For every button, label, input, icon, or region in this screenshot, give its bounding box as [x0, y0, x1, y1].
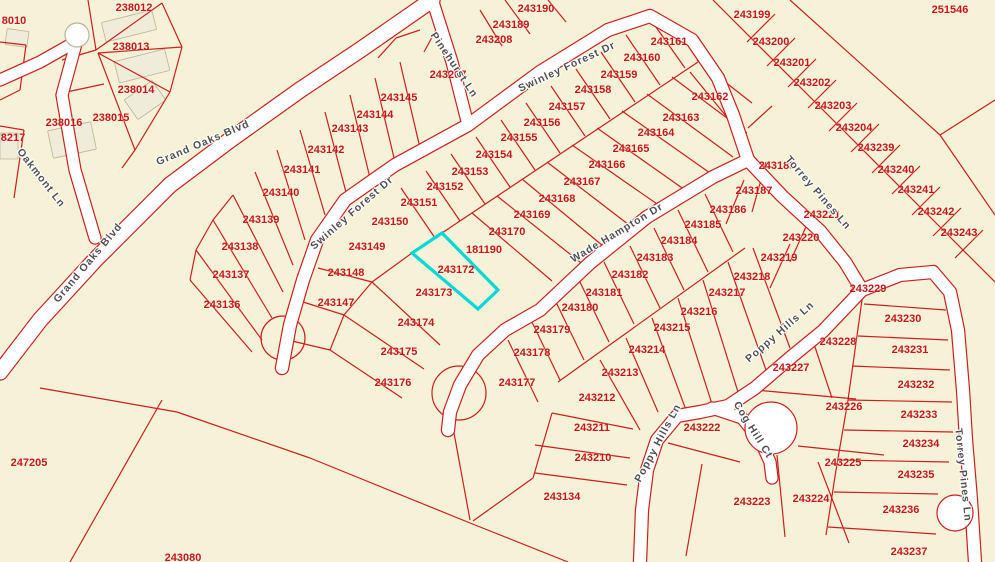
parcel-label-243162[interactable]: 243162 — [692, 91, 729, 103]
parcel-label-238015[interactable]: 238015 — [93, 112, 130, 124]
parcel-boundary-line — [162, 3, 182, 47]
parcel-boundary-line — [755, 390, 856, 399]
parcel-label-243226[interactable]: 243226 — [826, 401, 863, 413]
parcel-boundary-line — [213, 195, 233, 220]
parcel-label-243174[interactable]: 243174 — [398, 317, 435, 329]
parcel-label-243227[interactable]: 243227 — [773, 362, 810, 374]
parcel-boundary-line — [177, 412, 310, 458]
parcel-boundary-line — [70, 400, 162, 562]
parcel-label-243150[interactable]: 243150 — [372, 216, 409, 228]
parcel-label-243224[interactable]: 243224 — [793, 493, 830, 505]
parcel-label-243161[interactable]: 243161 — [651, 36, 688, 48]
parcel-label-243168[interactable]: 243168 — [539, 193, 576, 205]
parcel-boundary-line — [0, 126, 24, 130]
parcel-label-238013[interactable]: 238013 — [113, 41, 150, 53]
parcel-boundary-line — [535, 473, 627, 485]
parcel-label-8217[interactable]: 8217 — [1, 132, 25, 144]
parcel-label-243144[interactable]: 243144 — [357, 109, 394, 121]
parcel-label-243230[interactable]: 243230 — [885, 313, 922, 325]
road-oakmont-connector — [0, 45, 70, 80]
parcel-boundary-line — [190, 280, 252, 352]
parcel-label-243145[interactable]: 243145 — [381, 92, 418, 104]
parcel-boundary-line — [668, 443, 740, 462]
parcel-label-243225[interactable]: 243225 — [825, 457, 862, 469]
parcel-label-243153[interactable]: 243153 — [452, 166, 489, 178]
parcel-label-243142[interactable]: 243142 — [308, 144, 345, 156]
parcel-boundary-line — [401, 188, 435, 238]
parcel-label-243234[interactable]: 243234 — [903, 438, 940, 450]
parcel-label-243164[interactable]: 243164 — [638, 127, 675, 139]
parcel-boundary-line — [330, 315, 344, 350]
parcel-label-238016[interactable]: 238016 — [46, 117, 83, 129]
parcel-boundary-line — [476, 137, 510, 187]
parcel-label-243218[interactable]: 243218 — [734, 271, 771, 283]
parcel-label-243139[interactable]: 243139 — [243, 214, 280, 226]
parcel-label-243187[interactable]: 243187 — [736, 185, 773, 197]
parcel-label-243149[interactable]: 243149 — [349, 241, 386, 253]
parcel-map-canvas[interactable]: 8010238012238013238014238015238016821724… — [0, 0, 995, 562]
parcel-label-243138[interactable]: 243138 — [222, 241, 259, 253]
parcel-boundary-line — [848, 400, 952, 402]
parcel-boundary-line — [426, 171, 460, 221]
parcel-label-243167[interactable]: 243167 — [564, 176, 601, 188]
parcel-label-243214[interactable]: 243214 — [629, 344, 666, 356]
parcel-label-243152[interactable]: 243152 — [427, 181, 464, 193]
parcel-label-243186[interactable]: 243186 — [710, 204, 747, 216]
parcel-boundary-line — [196, 250, 262, 340]
parcel-label-243178[interactable]: 243178 — [514, 347, 551, 359]
culdesac-bulb — [65, 23, 89, 47]
parcel-label-243175[interactable]: 243175 — [381, 346, 418, 358]
parcel-label-243134[interactable]: 243134 — [544, 491, 581, 503]
parcel-boundary-line — [0, 90, 20, 100]
parcel-label-243166[interactable]: 243166 — [589, 159, 626, 171]
parcel-label-243159[interactable]: 243159 — [601, 69, 638, 81]
parcel-boundary-line — [777, 455, 785, 537]
parcel-label-243215[interactable]: 243215 — [654, 322, 691, 334]
parcel-label-243204[interactable]: 243204 — [836, 122, 873, 134]
parcel-label-243148[interactable]: 243148 — [328, 267, 365, 279]
parcel-label-243201[interactable]: 243201 — [774, 57, 811, 69]
parcel-label-243228[interactable]: 243228 — [820, 336, 857, 348]
parcel-label-243223[interactable]: 243223 — [734, 496, 771, 508]
parcel-boundary-line — [470, 523, 568, 562]
parcel-boundary-line — [790, 0, 940, 135]
parcel-boundary-line — [196, 220, 213, 250]
parcel-label-238014[interactable]: 238014 — [118, 84, 155, 96]
parcel-label-243137[interactable]: 243137 — [213, 269, 250, 281]
parcel-boundary-line — [798, 446, 884, 455]
parcel-boundary-line — [814, 344, 832, 398]
parcel-label-243242[interactable]: 243242 — [918, 206, 955, 218]
parcel-label-243140[interactable]: 243140 — [263, 187, 300, 199]
parcel-boundary-line — [350, 95, 370, 178]
parcel-label-243231[interactable]: 243231 — [892, 344, 929, 356]
parcel-boundary-line — [852, 366, 950, 370]
parcel-label-243136[interactable]: 243136 — [204, 299, 241, 311]
parcel-boundary-line — [122, 150, 135, 168]
parcel-label-243154[interactable]: 243154 — [476, 149, 513, 161]
parcel-label-243216[interactable]: 243216 — [681, 306, 718, 318]
parcel-label-243158[interactable]: 243158 — [575, 84, 612, 96]
parcel-boundary-line — [848, 300, 862, 400]
parcel-label-243222[interactable]: 243222 — [684, 422, 721, 434]
parcel-boundary-line — [170, 47, 182, 92]
parcel-label-243235[interactable]: 243235 — [898, 469, 935, 481]
parcel-label-243240[interactable]: 243240 — [878, 164, 915, 176]
parcel-label-243219[interactable]: 243219 — [761, 252, 798, 264]
parcel-boundary-line — [686, 464, 702, 556]
parcel-label-243155[interactable]: 243155 — [501, 132, 538, 144]
parcel-boundary-line — [647, 94, 733, 157]
parcel-label-243177[interactable]: 243177 — [499, 377, 536, 389]
parcel-label-243202[interactable]: 243202 — [794, 77, 831, 89]
parcel-label-243232[interactable]: 243232 — [898, 379, 935, 391]
parcel-label-243141[interactable]: 243141 — [284, 164, 321, 176]
parcel-label-8010[interactable]: 8010 — [2, 15, 26, 27]
parcel-label-243208[interactable]: 243208 — [476, 34, 513, 46]
parcel-boundary-line — [940, 100, 995, 135]
parcel-label-243229[interactable]: 243229 — [850, 283, 887, 295]
parcel-label-251546[interactable]: 251546 — [932, 4, 969, 16]
parcel-label-243237[interactable]: 243237 — [891, 546, 928, 558]
parcel-boundary-line — [858, 336, 948, 340]
parcel-label-243179[interactable]: 243179 — [534, 324, 571, 336]
parcel-label-243163[interactable]: 243163 — [663, 112, 700, 124]
parcel-label-243156[interactable]: 243156 — [524, 117, 561, 129]
parcel-label-243182[interactable]: 243182 — [612, 269, 649, 281]
parcel-label-243176[interactable]: 243176 — [375, 377, 412, 389]
parcel-label-243180[interactable]: 243180 — [562, 302, 599, 314]
parcel-label-243173[interactable]: 243173 — [416, 287, 453, 299]
parcel-label-243184[interactable]: 243184 — [661, 235, 698, 247]
parcel-label-243172[interactable]: 243172 — [438, 264, 475, 276]
parcel-boundary-line — [748, 106, 772, 128]
parcel-label-243190[interactable]: 243190 — [518, 3, 555, 15]
parcel-label-243200[interactable]: 243200 — [753, 36, 790, 48]
parcel-label-247205[interactable]: 247205 — [11, 457, 48, 469]
parcel-label-243211[interactable]: 243211 — [574, 422, 610, 434]
parcel-label-243143[interactable]: 243143 — [332, 123, 369, 135]
parcel-boundary-line — [940, 135, 995, 215]
parcel-label-243151[interactable]: 243151 — [401, 197, 438, 209]
parcel-label-243203[interactable]: 243203 — [815, 100, 852, 112]
parcel-boundary-line — [372, 253, 412, 282]
parcel-label-243236[interactable]: 243236 — [883, 504, 920, 516]
parcel-boundary-line — [844, 430, 953, 432]
parcel-boundary-line — [190, 250, 196, 280]
parcel-label-243233[interactable]: 243233 — [901, 409, 938, 421]
parcel-boundary-line — [88, 0, 96, 50]
parcel-label-243213[interactable]: 243213 — [602, 367, 639, 379]
parcel-label-243243[interactable]: 243243 — [941, 227, 978, 239]
parcel-boundary-line — [452, 422, 470, 520]
parcel-label-243241[interactable]: 243241 — [898, 184, 935, 196]
parcel-boundary-line — [770, 244, 790, 288]
parcel-label-243169[interactable]: 243169 — [514, 209, 551, 221]
parcel-label-243199[interactable]: 243199 — [734, 9, 771, 21]
parcel-boundary-line — [292, 341, 330, 350]
parcel-label-243212[interactable]: 243212 — [579, 392, 616, 404]
parcel-label-238012[interactable]: 238012 — [116, 2, 153, 14]
parcel-label-243181[interactable]: 243181 — [586, 287, 623, 299]
parcel-label-243183[interactable]: 243183 — [637, 252, 674, 264]
parcel-boundary-line — [834, 492, 938, 494]
parcel-label-243220[interactable]: 243220 — [783, 232, 820, 244]
parcel-label-181190[interactable]: 181190 — [466, 244, 502, 256]
parcel-label-243147[interactable]: 243147 — [318, 297, 355, 309]
parcel-boundary-line — [310, 458, 470, 523]
parcel-label-243189[interactable]: 243189 — [493, 19, 530, 31]
parcel-label-243080[interactable]: 243080 — [165, 552, 202, 562]
parcel-label-243165[interactable]: 243165 — [613, 143, 650, 155]
parcel-boundary-line — [40, 388, 177, 412]
parcel-label-243157[interactable]: 243157 — [549, 101, 586, 113]
parcel-boundary-line — [400, 62, 420, 148]
parcel-boundary-line — [473, 478, 533, 521]
parcel-boundary-line — [451, 154, 485, 204]
parcel-label-243210[interactable]: 243210 — [575, 452, 612, 464]
parcel-label-243217[interactable]: 243217 — [709, 287, 746, 299]
parcel-label-243239[interactable]: 243239 — [858, 142, 895, 154]
parcel-label-243170[interactable]: 243170 — [489, 226, 526, 238]
parcel-label-243160[interactable]: 243160 — [624, 52, 661, 64]
parcel-boundary-line — [864, 304, 946, 310]
parcel-label-243185[interactable]: 243185 — [685, 219, 722, 231]
